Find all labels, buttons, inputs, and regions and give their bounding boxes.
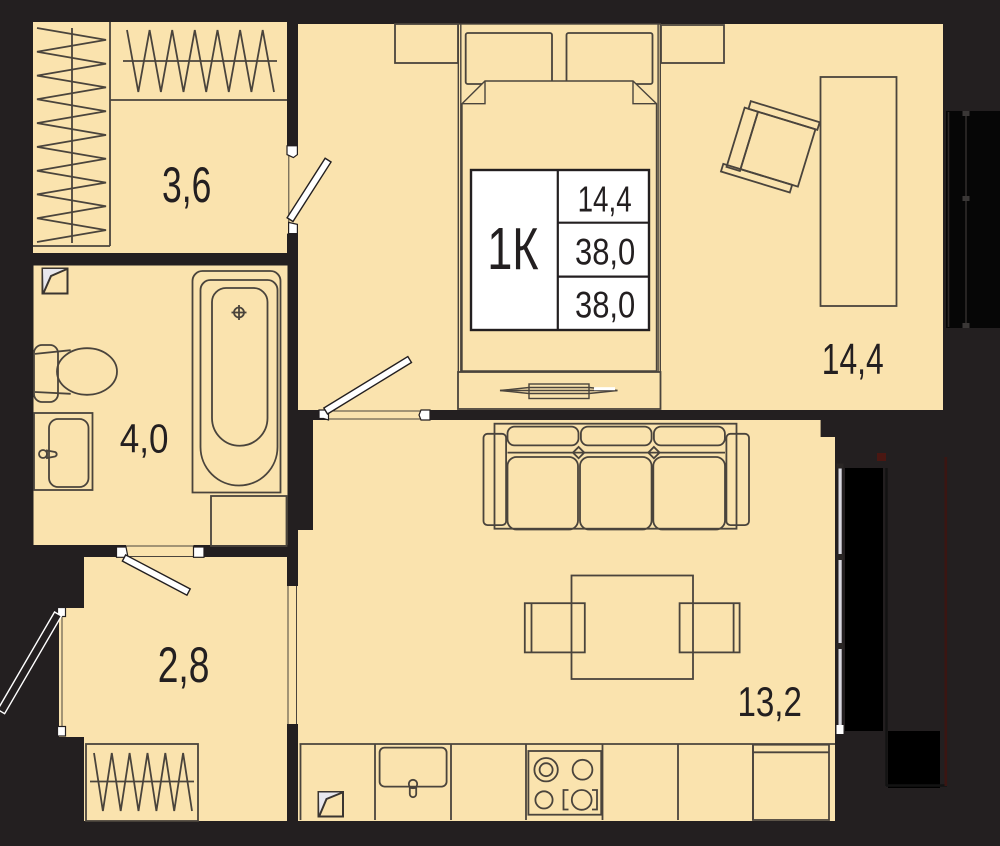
svg-text:2,8: 2,8 bbox=[158, 638, 210, 694]
svg-text:13,2: 13,2 bbox=[738, 679, 802, 726]
svg-text:38,0: 38,0 bbox=[575, 285, 635, 326]
svg-text:3,6: 3,6 bbox=[162, 158, 211, 213]
svg-text:1К: 1К bbox=[487, 216, 539, 282]
svg-text:4,0: 4,0 bbox=[120, 417, 169, 462]
svg-text:14,4: 14,4 bbox=[822, 335, 884, 384]
svg-text:14,4: 14,4 bbox=[578, 179, 632, 219]
svg-text:38,0: 38,0 bbox=[575, 232, 635, 273]
